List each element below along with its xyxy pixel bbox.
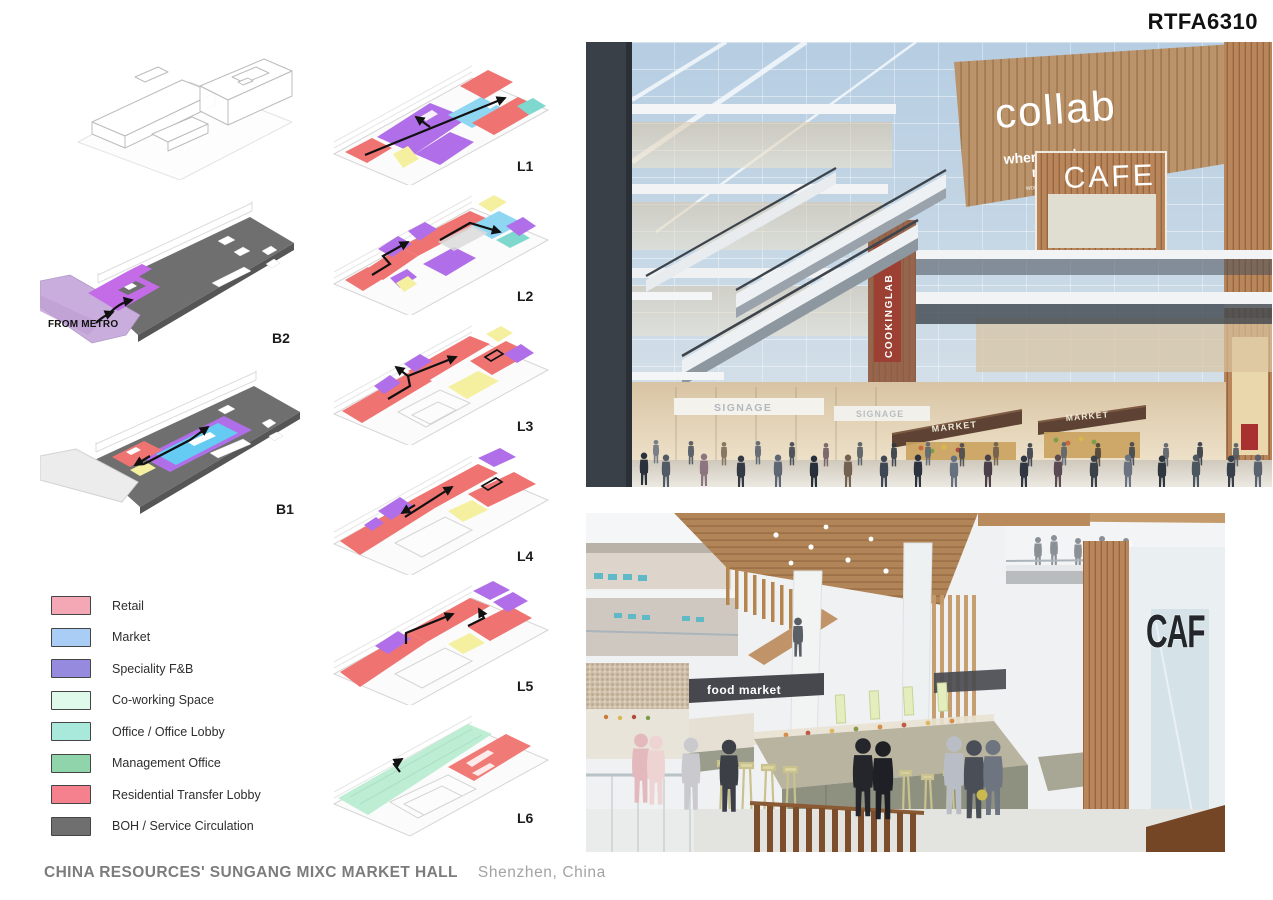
diagram-l6: L6 [320,705,560,845]
legend-swatch [51,691,91,710]
project-title: CHINA RESOURCES' SUNGANG MIXC MARKET HAL… [44,864,458,882]
caf-sign-text: CAF [1146,607,1205,658]
legend-item-market: Market [51,622,261,654]
legend-item-boh: BOH / Service Circulation [51,811,261,843]
massing-diagram [40,30,310,180]
diagram-l4: L4 [320,445,560,575]
signage-left-text: SIGNAGE [714,402,772,414]
legend-label: Office / Office Lobby [112,725,225,739]
project-location: Shenzhen, China [478,864,606,882]
legend-swatch [51,785,91,804]
level-label-l6: L6 [517,810,534,826]
legend-swatch [51,722,91,741]
legend-item-management: Management Office [51,748,261,780]
diagram-l3: L3 [320,315,560,445]
legend-label: Co-working Space [112,693,214,707]
legend-swatch [51,817,91,836]
legend-label: Market [112,630,150,644]
level-label-l3: L3 [517,418,534,434]
legend-item-retail: Retail [51,590,261,622]
level-label-l5: L5 [517,678,534,694]
legend-label: Retail [112,599,144,613]
legend: Retail Market Speciality F&B Co-working … [51,590,261,842]
diagram-b1: B1 [40,360,320,530]
presentation-board: RTFA6310 [0,0,1273,900]
cafe-box: CAFE [1036,152,1166,252]
level-label-l4: L4 [517,548,534,564]
atrium-render: collab where work meets life work · cafe… [586,42,1272,487]
legend-swatch [51,659,91,678]
diagram-l1: L1 [320,55,560,185]
cafe-sign-text: CAFE [1063,159,1156,195]
legend-label: BOH / Service Circulation [112,819,254,833]
glass-railing [586,775,694,852]
legend-item-office: Office / Office Lobby [51,716,261,748]
diagram-l2: L2 [320,185,560,315]
food-market-text: food market [707,683,781,697]
legend-label: Residential Transfer Lobby [112,788,261,802]
diagram-l5: L5 [320,575,560,705]
legend-swatch [51,754,91,773]
project-title-block: CHINA RESOURCES' SUNGANG MIXC MARKET HAL… [44,864,606,882]
signage-right-text: SIGNAGE [856,409,904,419]
board-code: RTFA6310 [1148,9,1258,35]
legend-item-speciality-fb: Speciality F&B [51,653,261,685]
caf-portal: CAF [1083,541,1225,852]
from-metro-label: FROM METRO [48,319,118,330]
legend-label: Management Office [112,756,221,770]
level-label-l1: L1 [517,158,534,174]
legend-item-coworking: Co-working Space [51,685,261,717]
level-label-l2: L2 [517,288,534,304]
diagram-b2: FROM METRO B2 [40,195,310,355]
level-label-b2: B2 [272,330,290,346]
level-label-b1: B1 [276,501,294,517]
cookinglab-text: COOKINGLAB [884,274,895,358]
market-hall-render: food market [586,513,1225,852]
legend-swatch [51,596,91,615]
legend-item-residential: Residential Transfer Lobby [51,779,261,811]
legend-swatch [51,628,91,647]
collab-sign-text: collab [993,82,1118,137]
legend-label: Speciality F&B [112,662,193,676]
